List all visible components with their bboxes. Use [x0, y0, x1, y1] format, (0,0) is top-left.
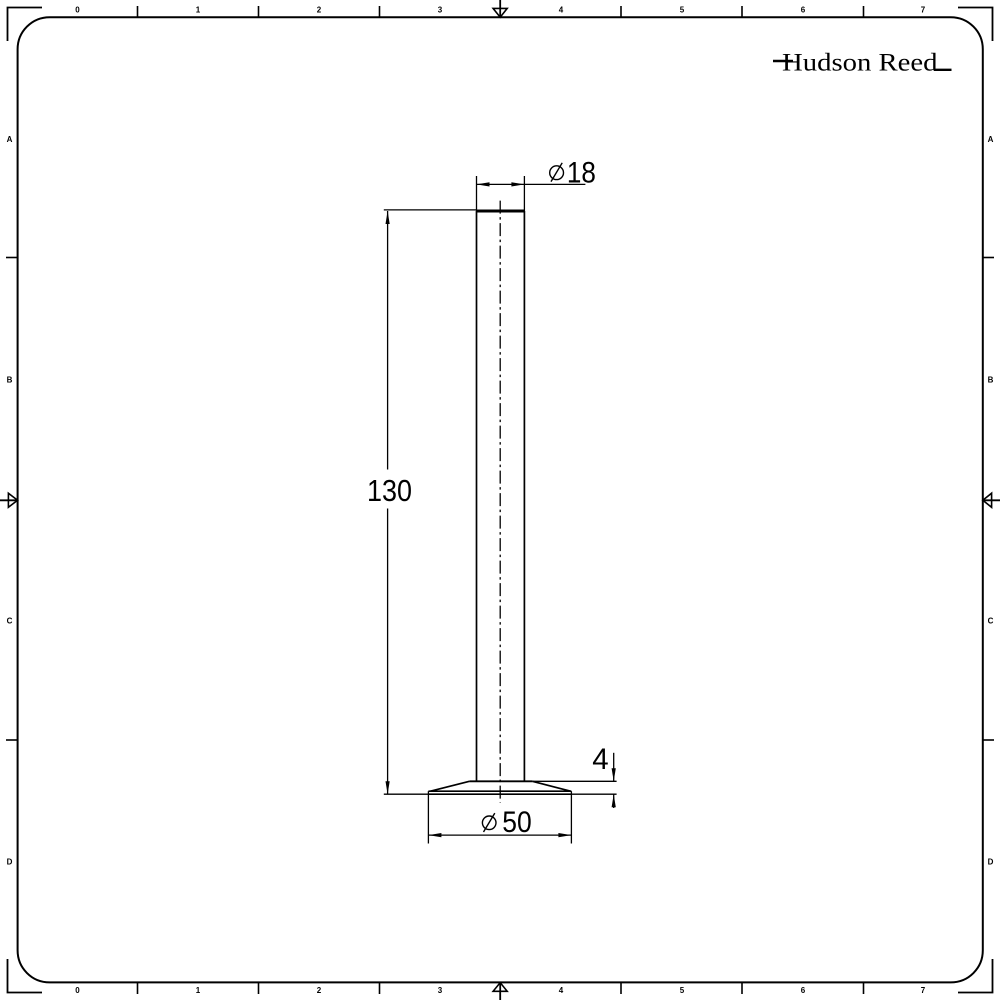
svg-text:4: 4	[559, 6, 564, 15]
svg-text:1: 1	[196, 986, 201, 995]
svg-text:3: 3	[438, 6, 443, 15]
svg-text:D: D	[988, 858, 994, 867]
svg-text:3: 3	[438, 986, 443, 995]
svg-text:1: 1	[196, 6, 201, 15]
svg-text:2: 2	[317, 6, 322, 15]
svg-text:D: D	[7, 858, 13, 867]
svg-text:B: B	[988, 376, 994, 385]
svg-text:5: 5	[680, 986, 685, 995]
svg-text:7: 7	[921, 6, 926, 15]
svg-text:4: 4	[592, 743, 608, 776]
svg-text:18: 18	[567, 156, 596, 189]
svg-text:B: B	[7, 376, 13, 385]
svg-text:50: 50	[502, 806, 532, 839]
svg-text:0: 0	[75, 986, 80, 995]
svg-text:C: C	[988, 617, 994, 626]
svg-text:7: 7	[921, 986, 926, 995]
svg-text:Hudson Reed: Hudson Reed	[782, 50, 938, 77]
svg-text:2: 2	[317, 986, 322, 995]
svg-text:6: 6	[801, 986, 806, 995]
svg-text:130: 130	[367, 473, 412, 508]
svg-text:A: A	[988, 135, 994, 144]
svg-text:5: 5	[680, 6, 685, 15]
svg-text:4: 4	[559, 986, 564, 995]
svg-text:0: 0	[75, 6, 80, 15]
svg-text:A: A	[7, 135, 13, 144]
svg-text:C: C	[7, 617, 13, 626]
svg-text:6: 6	[801, 6, 806, 15]
